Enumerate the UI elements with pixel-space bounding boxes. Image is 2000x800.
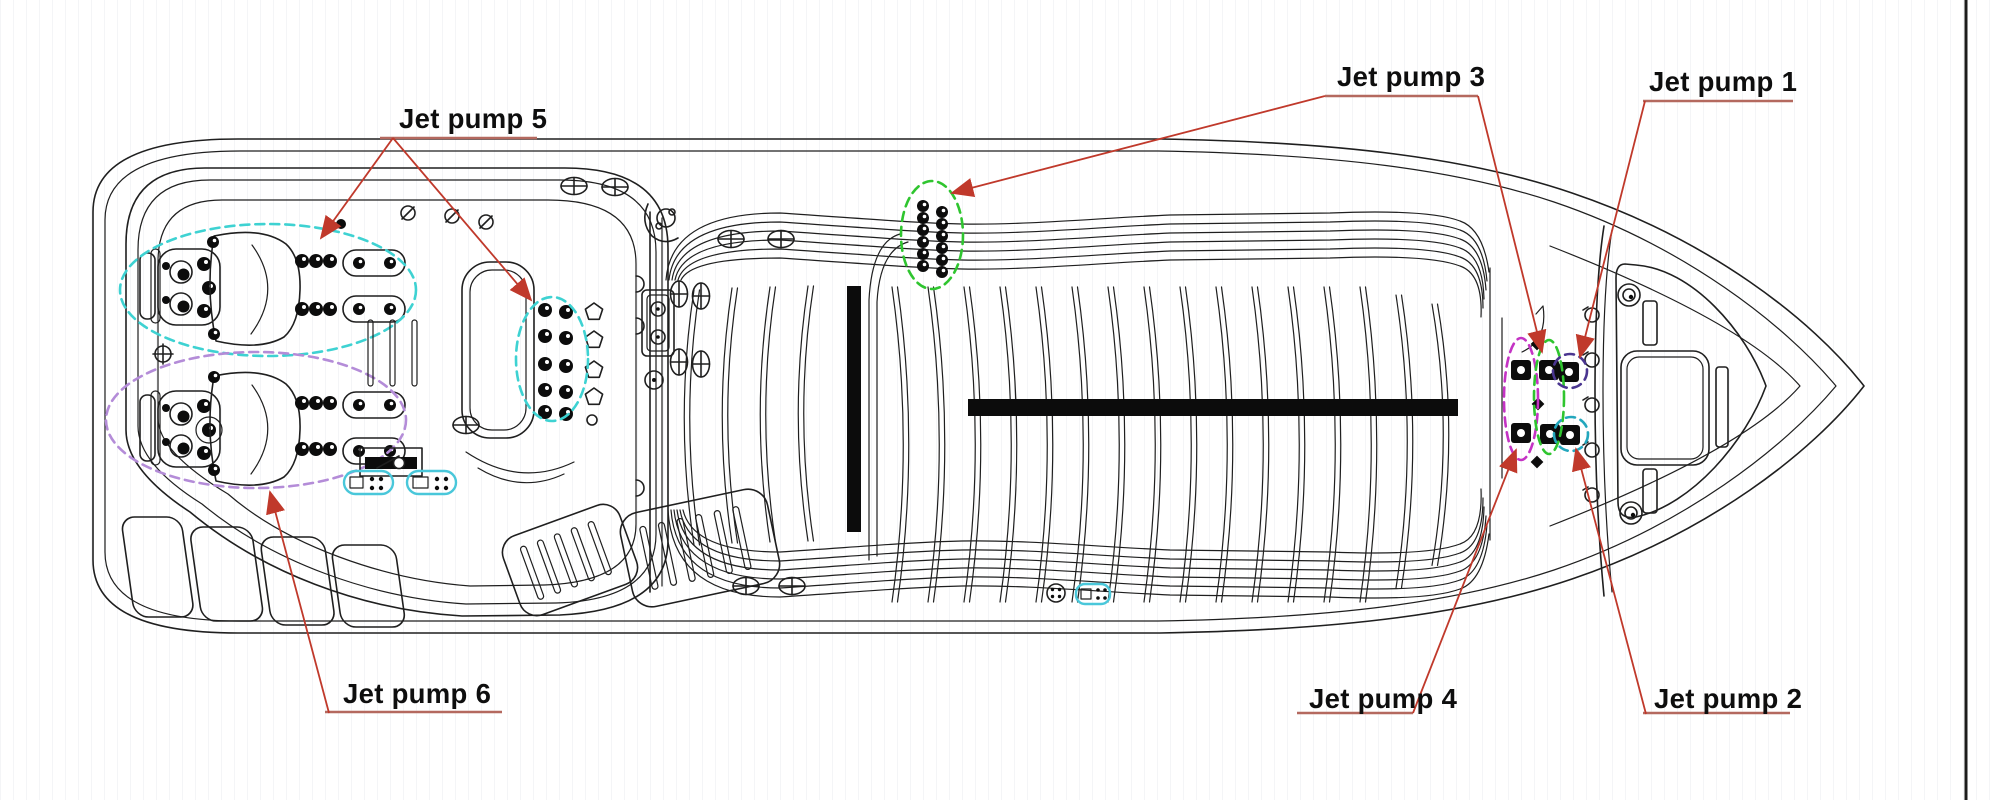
topside-controls xyxy=(344,448,456,494)
label-jet-pump-6: Jet pump 6 xyxy=(343,678,491,710)
leader-jet-pump-5-a xyxy=(321,138,393,238)
bench-seat xyxy=(462,262,603,438)
leader-jet-pump-6 xyxy=(270,492,329,713)
control-panel-right xyxy=(407,471,456,494)
swim-spa-diagram xyxy=(0,0,2000,800)
leader-jet-pump-3-a xyxy=(952,96,1325,193)
leader-jet-pump-3-b xyxy=(1478,96,1542,352)
drawing-sheet: Jet pump 5 Jet pump 3 Jet pump 1 Jet pum… xyxy=(0,0,2000,800)
leader-jet-pump-4 xyxy=(1413,450,1516,713)
swim-floor-ribs xyxy=(684,234,1449,602)
label-jet-pump-5: Jet pump 5 xyxy=(399,103,547,135)
control-panel-left xyxy=(344,471,393,494)
label-jet-pump-1: Jet pump 1 xyxy=(1649,66,1797,98)
bow-platform xyxy=(1595,226,1766,596)
center-lane-bar xyxy=(968,399,1458,416)
lane-marker-bar xyxy=(847,286,861,532)
stern-step-panels xyxy=(121,517,406,627)
label-jet-pump-2: Jet pump 2 xyxy=(1654,683,1802,715)
lower-lounge-seat xyxy=(106,352,406,488)
upper-lounge-seat xyxy=(120,219,416,356)
leader-jet-pump-1 xyxy=(1580,101,1645,357)
label-jet-pump-4: Jet pump 4 xyxy=(1309,683,1457,715)
entry-treads xyxy=(497,485,783,620)
label-jet-pump-3: Jet pump 3 xyxy=(1337,61,1485,93)
leader-jet-pump-2 xyxy=(1576,449,1646,714)
deck-fittings xyxy=(401,178,1065,603)
pool-mini-control xyxy=(1076,584,1110,604)
mid-pool-jet-cluster xyxy=(901,181,963,289)
region-jet-pump-5-bench xyxy=(516,297,588,421)
region-jet-pump-3-pool xyxy=(901,181,963,289)
